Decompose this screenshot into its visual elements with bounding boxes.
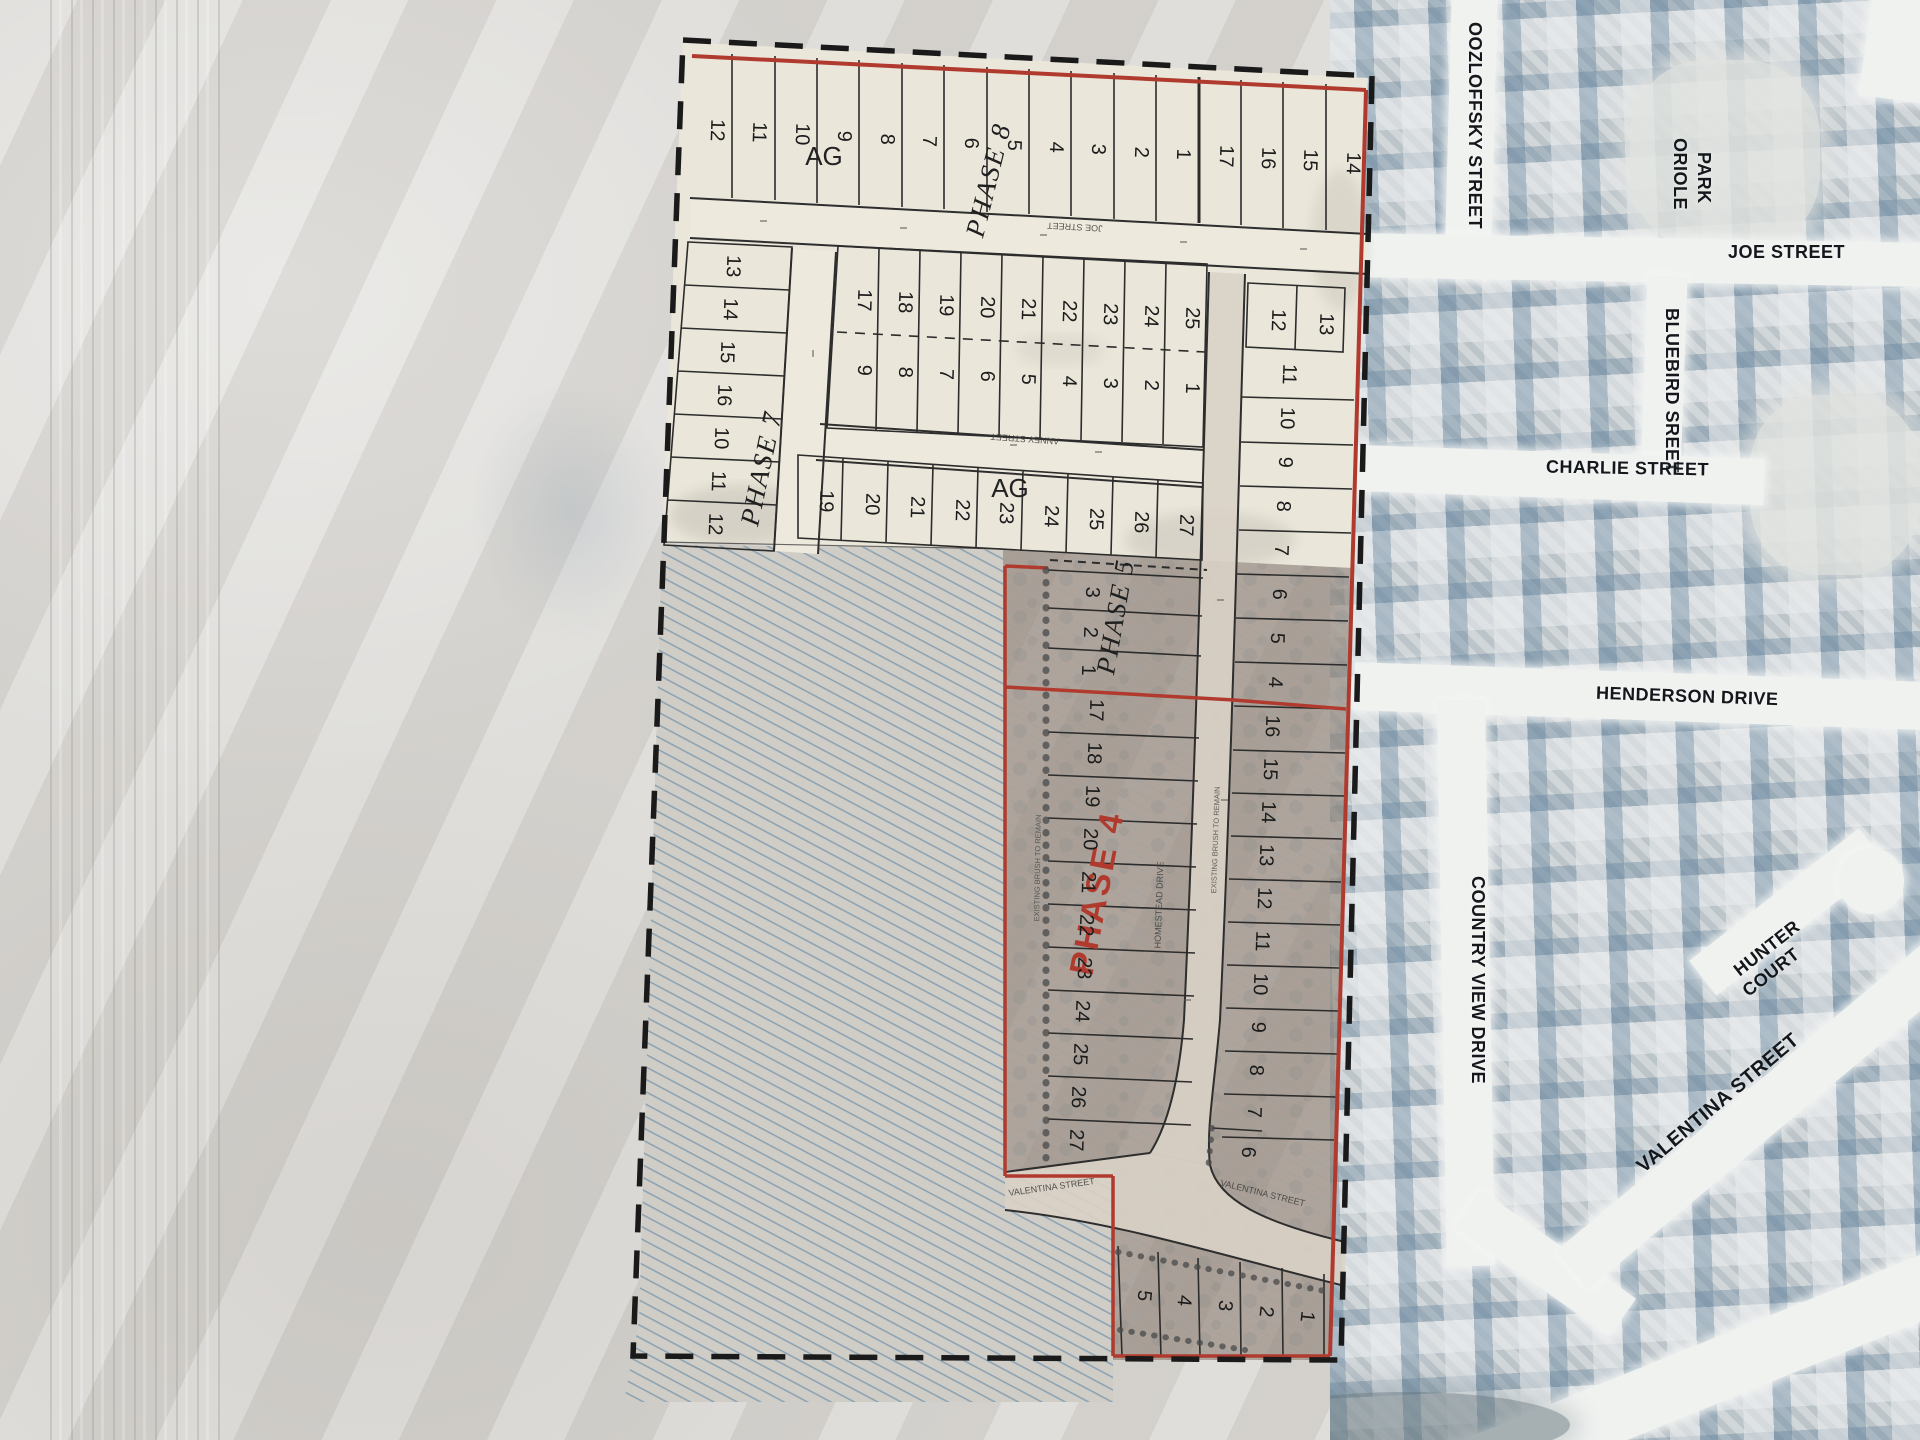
lot-number: 6 [960, 137, 982, 149]
lot-number: 23 [1073, 957, 1096, 980]
lot-number: 13 [722, 255, 745, 278]
lot-number: 17 [1085, 699, 1108, 722]
lot-number: 2 [1079, 626, 1101, 638]
lot-number: 22 [1075, 914, 1098, 937]
lot-number: 1 [1077, 664, 1099, 676]
lot-number: 24 [1040, 505, 1063, 528]
lot-number: 3 [1213, 1299, 1236, 1312]
lot-number: 27 [1065, 1129, 1088, 1152]
lot-number: 22 [951, 499, 974, 522]
lot-number: 22 [1058, 300, 1081, 323]
lot-number: 7 [1243, 1106, 1265, 1118]
lot-number: 5 [1266, 632, 1288, 644]
lot-number: 4 [1045, 141, 1067, 153]
lot-number: 10 [1276, 407, 1299, 430]
lot-number: 24 [1071, 1000, 1094, 1023]
lot-number: 15 [716, 341, 739, 364]
lot-number: 17 [1215, 145, 1238, 168]
lot-number: 16 [1257, 147, 1280, 170]
lot-number: 14 [719, 298, 742, 321]
lot-number: 6 [1237, 1146, 1259, 1158]
lot-number: 26 [1067, 1086, 1090, 1109]
lot-number: 5 [1132, 1289, 1155, 1302]
lot-number: 1 [1172, 148, 1194, 160]
lot-number: 23 [995, 502, 1018, 525]
lot-number: 20 [861, 493, 884, 516]
lot-number: 1 [1295, 1310, 1318, 1323]
lot-number: 18 [894, 291, 917, 314]
lot-number: 26 [1130, 511, 1153, 534]
lot-number: 17 [853, 289, 876, 312]
lot-number: 8 [894, 366, 916, 378]
lot-number: 9 [1247, 1021, 1269, 1033]
lot-number: 24 [1140, 305, 1163, 328]
lot-number: 10 [1249, 973, 1272, 996]
lot-number: 15 [1299, 149, 1322, 172]
lot-number: 5 [1003, 139, 1025, 151]
lot-number: 8 [1245, 1064, 1267, 1076]
lot-number: 3 [1087, 143, 1109, 155]
lot-number: 12 [1267, 309, 1290, 332]
lot-number: 21 [1017, 298, 1040, 321]
lot-number: 11 [707, 470, 730, 492]
lot-number: 7 [1270, 544, 1292, 556]
lot-number: 13 [1315, 313, 1338, 336]
lot-number: 8 [876, 133, 898, 145]
lot-number: 11 [1278, 363, 1301, 385]
lot-number: 18 [1083, 742, 1106, 765]
lot-number: 16 [713, 384, 736, 407]
plat-overlay: PHASE 8 PHASE 7 PHASE 5 PHASE 4 AG AG JO… [0, 0, 1920, 1440]
existing-brush-note-1: EXISTING BRUSH TO REMAIN [1032, 814, 1043, 921]
lot-number: 27 [1175, 514, 1198, 537]
lot-number: 12 [706, 119, 729, 142]
lot-number: 25 [1069, 1043, 1092, 1066]
lot-number: 1 [1181, 382, 1203, 394]
lot-number: 12 [704, 513, 727, 536]
lot-number: 4 [1172, 1294, 1195, 1307]
lot-number: 21 [1077, 871, 1100, 894]
lot-number: 6 [1268, 588, 1290, 600]
lot-number: 10 [791, 123, 814, 146]
lot-number: 11 [748, 121, 771, 143]
lot-number: 19 [1081, 785, 1104, 808]
lot-number: 2 [1140, 379, 1162, 391]
lot-number: 23 [1099, 303, 1122, 326]
plat-map: OOZLOFFSKY STREET ORIOLE PARK JOE STREET… [0, 0, 1920, 1440]
ag-label-south: AG [991, 473, 1029, 503]
lot-number: 14 [1342, 152, 1365, 175]
lot-number: 19 [815, 490, 838, 513]
lot-number: 5 [1017, 373, 1039, 385]
lot-number: 16 [1261, 715, 1284, 738]
lot-number: 14 [1257, 801, 1280, 824]
lot-number: 6 [976, 370, 998, 382]
lot-number: 10 [710, 427, 733, 450]
lot-number: 9 [833, 130, 855, 142]
lot-number: 2 [1254, 1305, 1277, 1318]
lot-number: 3 [1099, 377, 1121, 389]
lot-number: 25 [1085, 508, 1108, 531]
lot-number: 13 [1255, 844, 1278, 867]
lot-number: 19 [935, 294, 958, 317]
lot-number: 15 [1259, 758, 1282, 781]
lot-number: 12 [1253, 887, 1276, 910]
lot-number: 25 [1181, 307, 1204, 330]
lot-number: 9 [1274, 456, 1296, 468]
lot-number: 11 [1251, 930, 1274, 952]
lot-number: 21 [906, 496, 929, 519]
lot-number: 4 [1058, 375, 1080, 387]
lot-number: 9 [853, 364, 875, 376]
lot-number: 2 [1130, 146, 1152, 158]
lot-number: 20 [976, 296, 999, 319]
lot-number: 3 [1081, 586, 1103, 598]
lot-number: 7 [935, 368, 957, 380]
lot-number: 7 [918, 135, 940, 147]
lot-number: 4 [1264, 676, 1286, 688]
lot-number: 20 [1079, 828, 1102, 851]
lot-number: 8 [1272, 500, 1294, 512]
